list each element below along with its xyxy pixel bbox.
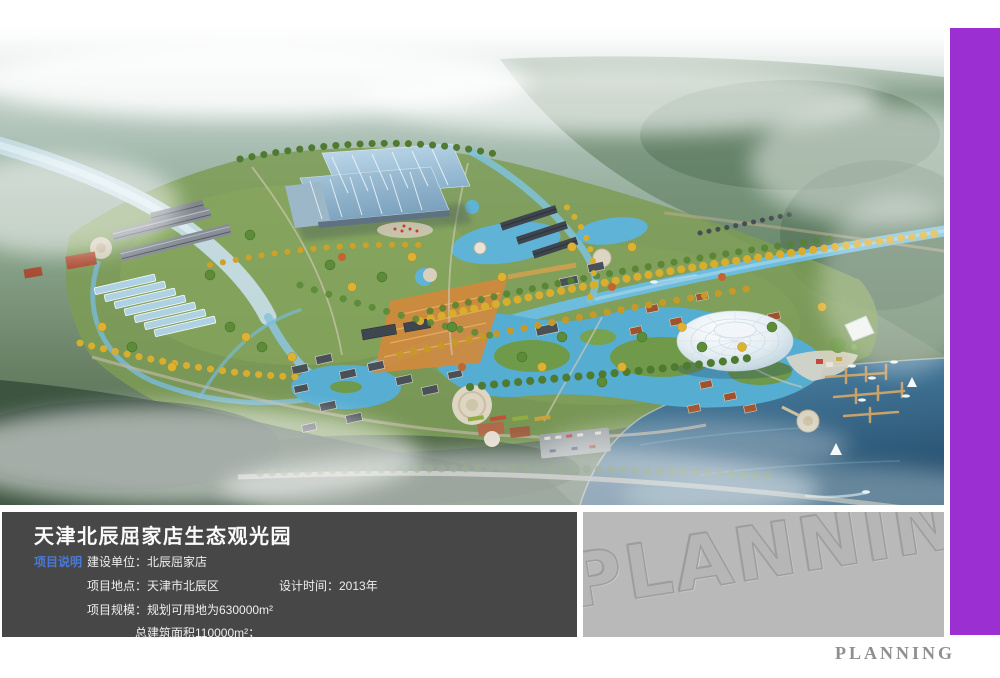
- top-mist: [0, 25, 944, 95]
- planning-footer-label: PLANNING: [835, 643, 955, 664]
- planning-watermark: PLANNING: [583, 512, 944, 626]
- aerial-rendering-svg: [0, 25, 944, 505]
- section-label: 项目说明: [34, 553, 82, 570]
- watermark-panel: PLANNING: [583, 512, 944, 637]
- field-design-time: 设计时间：2013年: [279, 577, 378, 594]
- field-location: 项目地点：天津市北辰区: [87, 577, 219, 594]
- project-title: 天津北辰屈家店生态观光园: [34, 520, 292, 549]
- accent-stripe: [950, 28, 1000, 635]
- aerial-rendering: [0, 25, 944, 505]
- field-builder: 建设单位：北辰屈家店: [87, 553, 207, 570]
- dome-pavilion: [677, 311, 793, 379]
- field-scale: 项目规模：规划可用地为630000m²: [87, 601, 273, 618]
- field-total-area: 总建筑面积110000m²；: [135, 624, 260, 641]
- project-info-panel: 天津北辰屈家店生态观光园 项目说明 建设单位：北辰屈家店 项目地点：天津市北辰区…: [2, 512, 577, 637]
